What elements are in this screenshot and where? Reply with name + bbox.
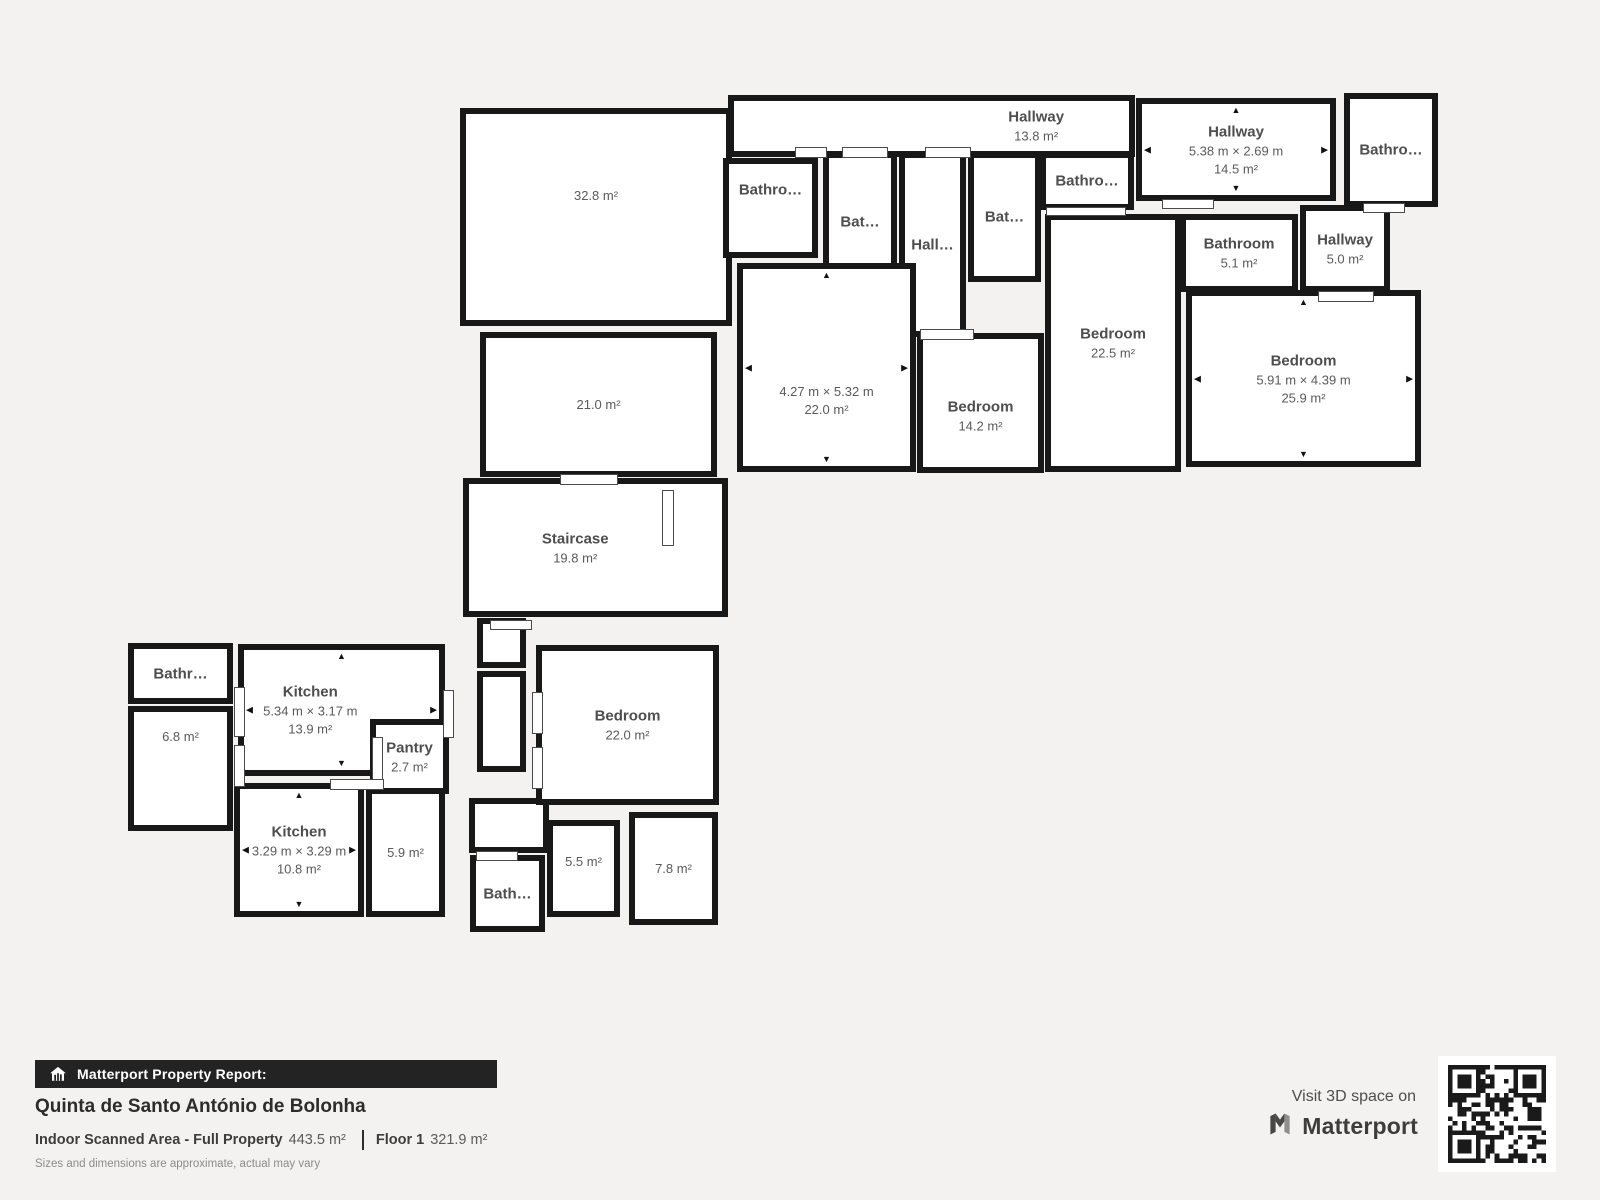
dim-arrow-down-icon: ▼ bbox=[337, 759, 346, 768]
room-name: Kitchen bbox=[263, 681, 357, 702]
room-area: 21.0 m² bbox=[576, 395, 620, 413]
dim-arrow-up-icon: ▲ bbox=[337, 652, 346, 661]
dim-arrow-up-icon: ▲ bbox=[1232, 106, 1241, 115]
room-area: 32.8 m² bbox=[574, 187, 618, 205]
room-name: Hall… bbox=[911, 234, 954, 255]
room-label: Bedroom5.91 m × 4.39 m25.9 m² bbox=[1256, 350, 1350, 407]
room-staircase: Staircase19.8 m² bbox=[463, 478, 728, 617]
room-label: 5.9 m² bbox=[387, 843, 424, 861]
qr-code bbox=[1438, 1056, 1556, 1172]
room-label: Bathro… bbox=[1359, 140, 1422, 161]
matterport-wordmark: Matterport bbox=[1302, 1113, 1418, 1140]
room-bathroom-51: Bathroom5.1 m² bbox=[1180, 214, 1298, 292]
dim-arrow-left-icon: ◀ bbox=[745, 363, 752, 372]
report-label: Matterport Property Report: bbox=[77, 1066, 267, 1082]
room-label: Bedroom22.5 m² bbox=[1080, 323, 1146, 362]
room-room-220a: 4.27 m × 5.32 m22.0 m²▲▼◀▶ bbox=[737, 263, 916, 472]
dim-arrow-left-icon: ◀ bbox=[242, 846, 249, 855]
door-window-opening bbox=[560, 474, 618, 485]
room-area: 14.5 m² bbox=[1189, 160, 1283, 178]
room-label: Bath… bbox=[483, 883, 531, 904]
room-area: 19.8 m² bbox=[542, 549, 609, 567]
room-area: 13.9 m² bbox=[263, 721, 357, 739]
room-area-210: 21.0 m² bbox=[480, 332, 717, 477]
room-label: Bedroom14.2 m² bbox=[948, 396, 1014, 435]
door-window-opening bbox=[1318, 291, 1374, 302]
floor-plan: 32.8 m²Hallway13.8 m²Bathro…Bat…Hall…Bat… bbox=[0, 0, 1600, 1200]
dim-arrow-up-icon: ▲ bbox=[822, 271, 831, 280]
room-area-78: 7.8 m² bbox=[629, 812, 718, 925]
room-dims: 5.38 m × 2.69 m bbox=[1189, 142, 1283, 160]
stats-divider bbox=[362, 1130, 364, 1150]
room-label: Kitchen5.34 m × 3.17 m13.9 m² bbox=[263, 681, 357, 738]
room-area-59: 5.9 m² bbox=[366, 788, 445, 917]
room-name: Bat… bbox=[985, 207, 1024, 228]
room-bathro-tr: Bathro… bbox=[1344, 93, 1438, 207]
room-name: Bedroom bbox=[1080, 323, 1146, 344]
visit-3d-text: Visit 3D space on bbox=[1266, 1088, 1416, 1106]
room-name: Hallway bbox=[1189, 121, 1283, 142]
door-window-opening bbox=[234, 687, 245, 737]
room-kitchen-108: Kitchen3.29 m × 3.29 m10.8 m²▲▼◀▶ bbox=[234, 783, 364, 917]
dim-arrow-down-icon: ▼ bbox=[1232, 184, 1241, 193]
room-label: 21.0 m² bbox=[576, 395, 620, 413]
property-name: Quinta de Santo António de Bolonha bbox=[35, 1096, 366, 1118]
room-label: Bathro… bbox=[739, 180, 802, 201]
room-name: Bedroom bbox=[948, 396, 1014, 417]
scanned-area-label: Indoor Scanned Area - Full Property bbox=[35, 1132, 283, 1148]
room-label: Hallway5.38 m × 2.69 m14.5 m² bbox=[1189, 121, 1283, 178]
room-name: Pantry bbox=[386, 737, 433, 758]
room-area: 10.8 m² bbox=[252, 861, 346, 879]
room-area: 5.9 m² bbox=[387, 843, 424, 861]
room-hallway-145: Hallway5.38 m × 2.69 m14.5 m²▲▼◀▶ bbox=[1136, 98, 1336, 201]
room-dims: 5.91 m × 4.39 m bbox=[1256, 371, 1350, 389]
room-area: 14.2 m² bbox=[948, 417, 1014, 435]
room-bat-t4: Bat… bbox=[968, 152, 1041, 282]
room-label: 7.8 m² bbox=[655, 859, 692, 877]
room-name: Bathro… bbox=[1359, 140, 1422, 161]
room-name: Hallway bbox=[1008, 106, 1064, 127]
room-area: 22.0 m² bbox=[595, 726, 661, 744]
room-label: Hall… bbox=[911, 234, 954, 255]
door-window-opening bbox=[662, 490, 674, 546]
room-bathr-bl: Bathr… bbox=[128, 643, 233, 704]
room-label: 5.5 m² bbox=[565, 853, 602, 871]
report-banner: Matterport Property Report: bbox=[35, 1060, 497, 1088]
house-icon bbox=[49, 1065, 67, 1083]
door-window-opening bbox=[920, 329, 974, 340]
room-name: Bathro… bbox=[739, 180, 802, 201]
matterport-logo-icon bbox=[1266, 1110, 1302, 1143]
room-bathroom-bc: Bath… bbox=[470, 855, 545, 932]
room-area: 5.0 m² bbox=[1317, 250, 1373, 268]
dim-arrow-down-icon: ▼ bbox=[1299, 450, 1308, 459]
door-window-opening bbox=[476, 851, 518, 861]
dim-arrow-up-icon: ▲ bbox=[1299, 298, 1308, 307]
room-bathro-t5: Bathro… bbox=[1040, 152, 1134, 210]
dim-arrow-left-icon: ◀ bbox=[1144, 145, 1151, 154]
disclaimer-text: Sizes and dimensions are approximate, ac… bbox=[35, 1158, 320, 1170]
door-window-opening bbox=[443, 690, 454, 738]
room-area-328: 32.8 m² bbox=[460, 108, 732, 326]
room-label: Kitchen3.29 m × 3.29 m10.8 m² bbox=[252, 821, 346, 878]
scanned-area-value: 443.5 m² bbox=[289, 1132, 346, 1148]
room-area-68: 6.8 m² bbox=[128, 706, 233, 831]
room-label: 32.8 m² bbox=[574, 187, 618, 205]
room-name: Bat… bbox=[840, 212, 879, 233]
room-dims: 5.34 m × 3.17 m bbox=[263, 702, 357, 720]
room-name: Bathroom bbox=[1204, 233, 1275, 254]
room-label: Bathro… bbox=[1055, 171, 1118, 192]
room-hallway-50: Hallway5.0 m² bbox=[1300, 205, 1390, 292]
room-name: Hallway bbox=[1317, 229, 1373, 250]
room-label: Staircase19.8 m² bbox=[542, 528, 609, 567]
room-label: Bat… bbox=[840, 212, 879, 233]
room-name: Bedroom bbox=[595, 705, 661, 726]
room-name: Staircase bbox=[542, 528, 609, 549]
dim-arrow-left-icon: ◀ bbox=[246, 706, 253, 715]
dim-arrow-down-icon: ▼ bbox=[822, 455, 831, 464]
room-name: Bathro… bbox=[1055, 171, 1118, 192]
room-name: Bedroom bbox=[1256, 350, 1350, 371]
room-label: Hallway5.0 m² bbox=[1317, 229, 1373, 268]
dim-arrow-right-icon: ▶ bbox=[1406, 374, 1413, 383]
room-label: 4.27 m × 5.32 m22.0 m² bbox=[779, 383, 873, 419]
door-window-opening bbox=[532, 747, 543, 789]
door-window-opening bbox=[925, 147, 971, 158]
dim-arrow-left-icon: ◀ bbox=[1194, 374, 1201, 383]
dim-arrow-up-icon: ▲ bbox=[295, 791, 304, 800]
room-bathro-t1: Bathro… bbox=[723, 158, 818, 258]
door-window-opening bbox=[372, 737, 383, 781]
room-area: 5.1 m² bbox=[1204, 254, 1275, 272]
dim-arrow-right-icon: ▶ bbox=[430, 706, 437, 715]
room-bedroom-142: Bedroom14.2 m² bbox=[917, 333, 1044, 473]
room-name: Bath… bbox=[483, 883, 531, 904]
door-window-opening bbox=[842, 147, 888, 158]
room-bedroom-259: Bedroom5.91 m × 4.39 m25.9 m²▲▼◀▶ bbox=[1186, 290, 1421, 467]
room-bedroom-220b: Bedroom22.0 m² bbox=[536, 645, 719, 805]
floor-label: Floor 1 bbox=[376, 1132, 424, 1148]
room-area: 6.8 m² bbox=[162, 728, 199, 746]
door-window-opening bbox=[1363, 203, 1405, 213]
room-dims: 4.27 m × 5.32 m bbox=[779, 383, 873, 401]
door-window-opening bbox=[490, 620, 532, 630]
door-window-opening bbox=[795, 147, 827, 158]
room-label: Bathr… bbox=[153, 663, 207, 684]
room-area-55: 5.5 m² bbox=[547, 820, 620, 917]
door-window-opening bbox=[1162, 199, 1214, 209]
door-window-opening bbox=[1046, 207, 1126, 216]
floor-value: 321.9 m² bbox=[430, 1132, 487, 1148]
room-bedroom-225: Bedroom22.5 m² bbox=[1045, 214, 1181, 472]
room-name: Kitchen bbox=[252, 821, 346, 842]
room-area: 2.7 m² bbox=[386, 758, 433, 776]
room-name: Bathr… bbox=[153, 663, 207, 684]
room-area: 22.5 m² bbox=[1080, 344, 1146, 362]
room-area: 25.9 m² bbox=[1256, 389, 1350, 407]
room-label: Bedroom22.0 m² bbox=[595, 705, 661, 744]
dim-arrow-right-icon: ▶ bbox=[1321, 145, 1328, 154]
room-label: Hallway13.8 m² bbox=[1008, 106, 1064, 145]
room-area: 22.0 m² bbox=[779, 401, 873, 419]
room-corridor-c bbox=[469, 798, 549, 853]
room-area: 7.8 m² bbox=[655, 859, 692, 877]
dim-arrow-right-icon: ▶ bbox=[349, 846, 356, 855]
room-corridor-b bbox=[477, 671, 526, 772]
room-label: Bat… bbox=[985, 207, 1024, 228]
room-area: 13.8 m² bbox=[1008, 127, 1064, 145]
room-label: Pantry2.7 m² bbox=[386, 737, 433, 776]
area-stats: Indoor Scanned Area - Full Property 443.… bbox=[35, 1130, 491, 1150]
dim-arrow-down-icon: ▼ bbox=[295, 900, 304, 909]
room-area: 5.5 m² bbox=[565, 853, 602, 871]
matterport-cta[interactable]: Visit 3D space on Matterport bbox=[1266, 1088, 1418, 1143]
door-window-opening bbox=[532, 692, 543, 734]
room-dims: 3.29 m × 3.29 m bbox=[252, 842, 346, 860]
door-window-opening bbox=[234, 745, 245, 787]
room-label: 6.8 m² bbox=[162, 728, 199, 746]
dim-arrow-right-icon: ▶ bbox=[901, 363, 908, 372]
room-label: Bathroom5.1 m² bbox=[1204, 233, 1275, 272]
door-window-opening bbox=[330, 779, 384, 790]
